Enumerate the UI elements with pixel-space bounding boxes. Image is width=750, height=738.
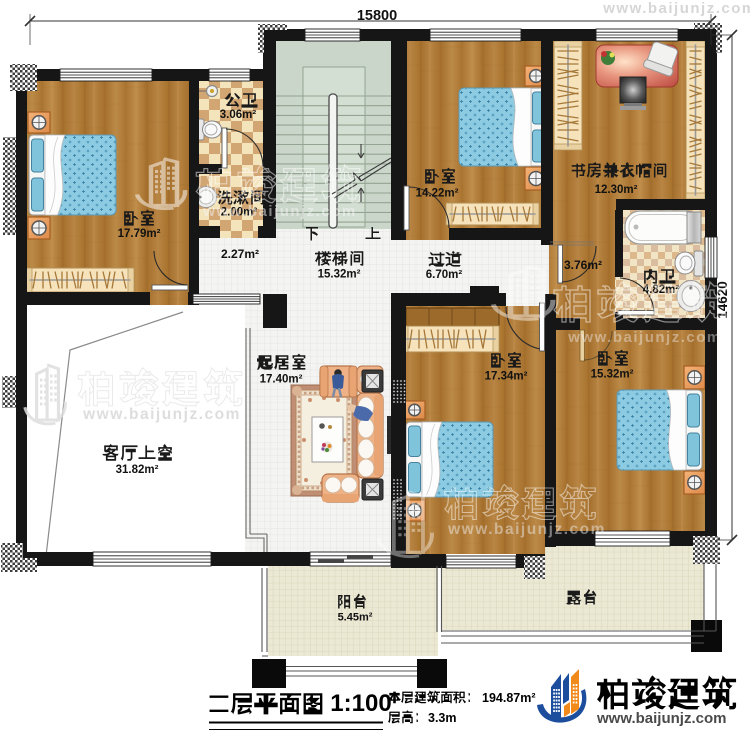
svg-text:31.82m²: 31.82m² [116, 464, 159, 476]
svg-text:15800: 15800 [357, 8, 397, 24]
svg-text:www.baijunjz.com: www.baijunjz.com [202, 203, 356, 220]
svg-text:1:100: 1:100 [330, 690, 391, 717]
svg-text:194.87m²: 194.87m² [482, 691, 536, 705]
svg-text:www.baijunjz.com: www.baijunjz.com [602, 0, 750, 17]
svg-text:www.baijunjz.com: www.baijunjz.com [82, 406, 241, 423]
svg-text:17.34m²: 17.34m² [485, 371, 528, 383]
svg-text:www.baijunjz.com: www.baijunjz.com [447, 521, 606, 538]
svg-text:www.baijunjz.com: www.baijunjz.com [567, 329, 721, 346]
svg-text:3.76m²: 3.76m² [564, 258, 602, 272]
svg-text:15.32m²: 15.32m² [591, 369, 634, 381]
svg-text:17.40m²: 17.40m² [260, 374, 303, 386]
svg-text:2.27m²: 2.27m² [221, 247, 259, 261]
svg-text:6.70m²: 6.70m² [426, 269, 463, 281]
svg-text:5.45m²: 5.45m² [338, 612, 373, 624]
svg-text:3.06m²: 3.06m² [220, 109, 257, 121]
svg-text:14620: 14620 [715, 281, 730, 319]
svg-text:12.30m²: 12.30m² [595, 184, 638, 196]
svg-text:3.3m: 3.3m [428, 711, 457, 725]
svg-text:17.79m²: 17.79m² [118, 228, 161, 240]
svg-text:15.32m²: 15.32m² [318, 269, 361, 281]
svg-text:14.22m²: 14.22m² [416, 188, 459, 200]
svg-text:www.baijunjz.com: www.baijunjz.com [596, 710, 726, 727]
